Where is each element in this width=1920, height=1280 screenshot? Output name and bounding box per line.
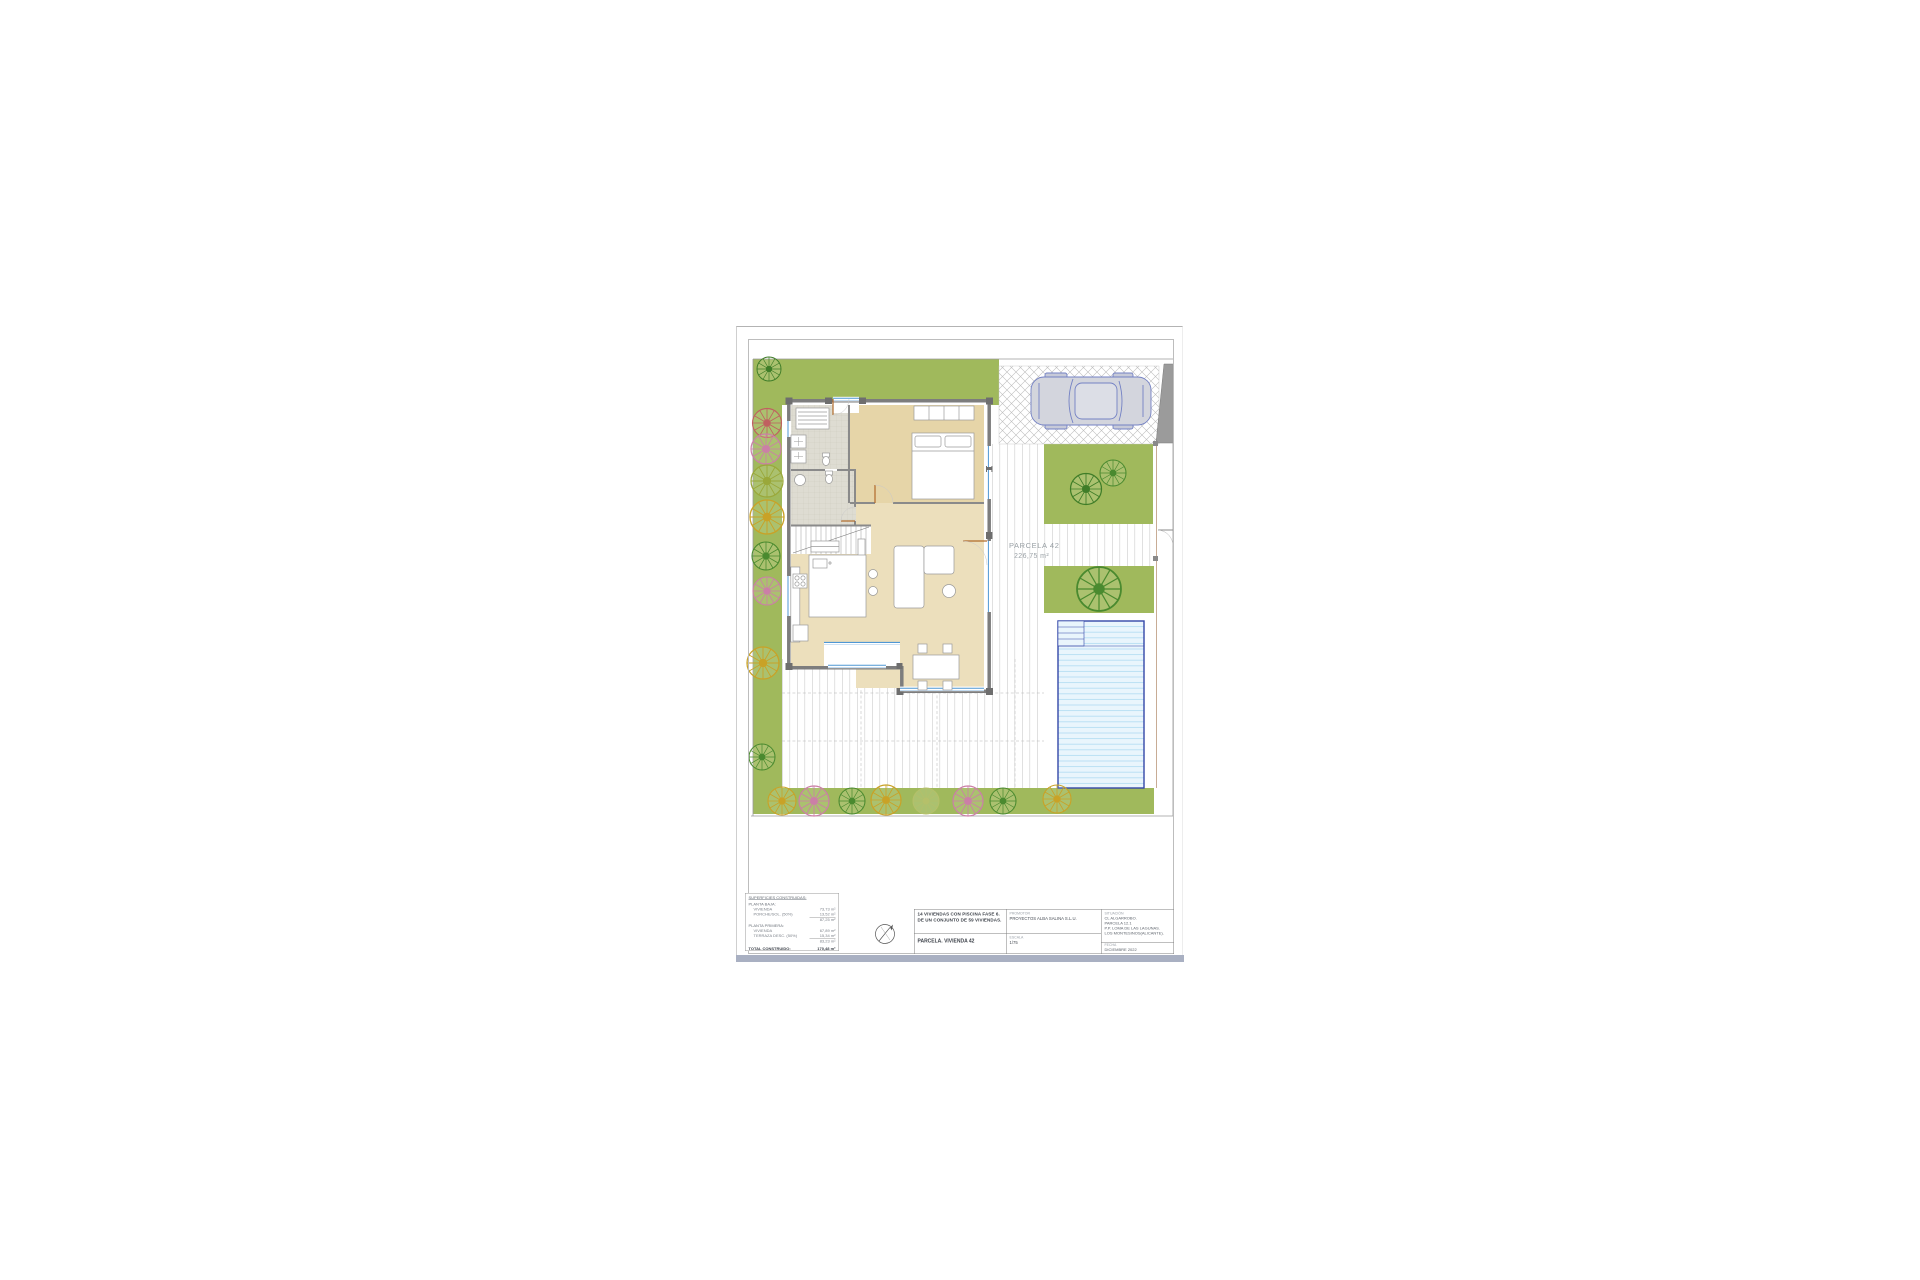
areas-table-header: SUPERFICIES CONSTRUIDAS: <box>749 896 836 901</box>
location-line: LOS MONTESINOS(ALICANTE). <box>1105 931 1171 936</box>
title-block-project: 14 VIVIENDAS CON PISCINA FASE 6. DE UN C… <box>915 910 1007 954</box>
title-block-promoter: PROMOTOR PROYECTOS ALBA SALINA S.L.U. ES… <box>1007 910 1102 954</box>
areas-table: SUPERFICIES CONSTRUIDAS: PLANTA BAJA: VI… <box>745 893 839 951</box>
table-row-subtotal: 83,23 m² <box>749 939 836 945</box>
promoter-value: PROYECTOS ALBA SALINA S.L.U. <box>1010 916 1099 922</box>
sheet-bottom-edge <box>736 955 1184 962</box>
table-row-subtotal: 87,25 m² <box>749 917 836 923</box>
title-block: 14 VIVIENDAS CON PISCINA FASE 6. DE UN C… <box>914 909 1174 954</box>
scale-value: 1/75 <box>1010 940 1099 946</box>
drawing-title: PARCELA. VIVIENDA 42 <box>918 936 1004 945</box>
title-block-location: SITUACIÓN CL ALGARROBO. PARCELA 12.1 P.P… <box>1102 910 1174 954</box>
table-row-total: TOTAL CONSTRUIDO: 170,48 m² <box>749 947 836 952</box>
project-title-line1: 14 VIVIENDAS CON PISCINA FASE 6. <box>918 912 1004 918</box>
date-value: DICIEMBRE 2022 <box>1105 948 1171 953</box>
project-title-line2: DE UN CONJUNTO DE 59 VIVIENDAS. <box>918 917 1004 923</box>
drawing-frame <box>748 339 1174 954</box>
drawing-sheet: PARCELA 42 226,75 m² SUPERFICIES CONSTRU… <box>736 326 1183 955</box>
